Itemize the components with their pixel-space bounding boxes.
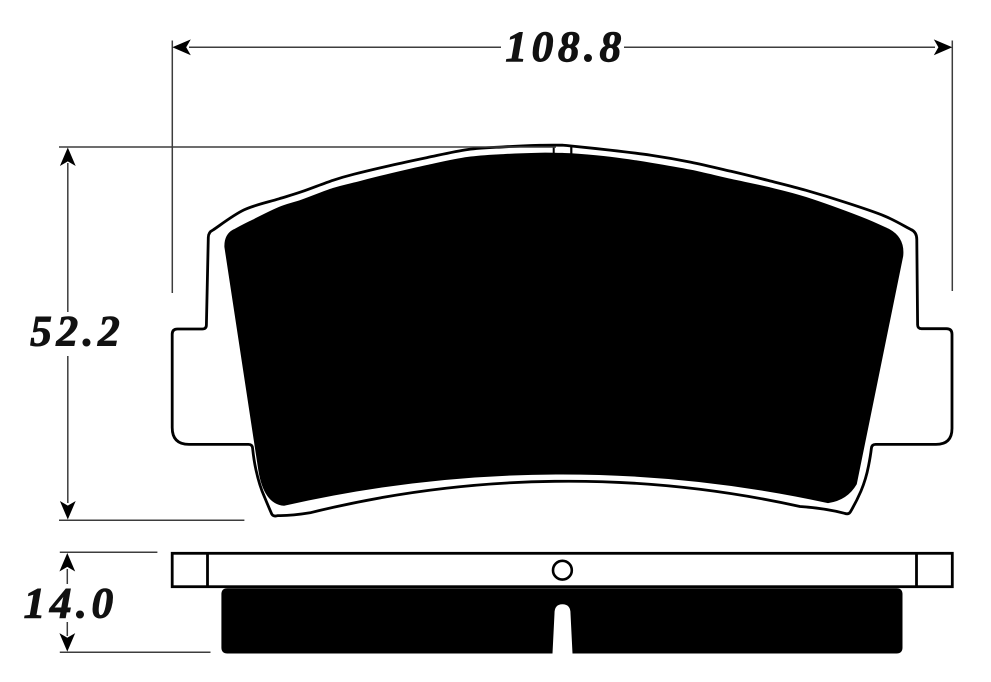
svg-text:14.0: 14.0 bbox=[24, 580, 118, 628]
svg-text:52.2: 52.2 bbox=[30, 308, 124, 356]
svg-text:108.8: 108.8 bbox=[505, 23, 625, 71]
